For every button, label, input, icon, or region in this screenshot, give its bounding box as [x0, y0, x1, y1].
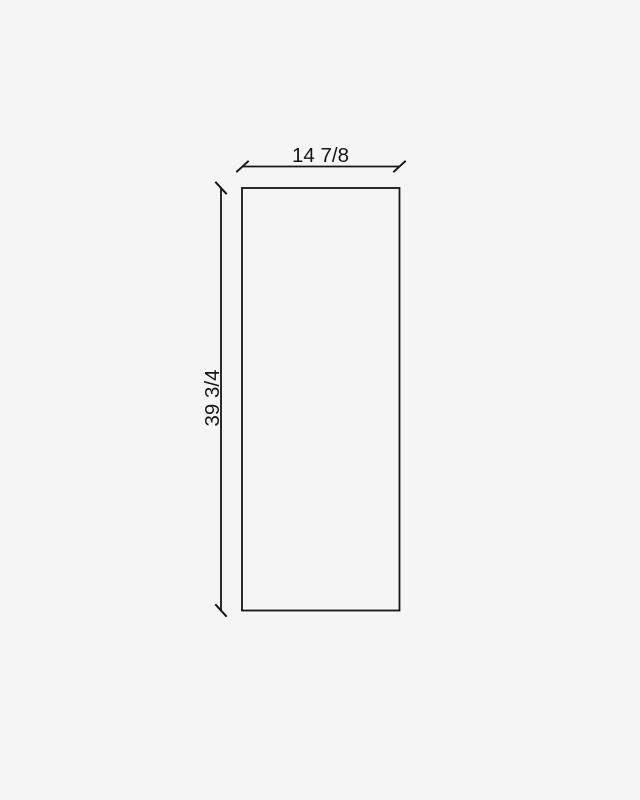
svg-text:14 7/8: 14 7/8 — [292, 144, 349, 167]
svg-text:39 3/4: 39 3/4 — [201, 370, 224, 427]
